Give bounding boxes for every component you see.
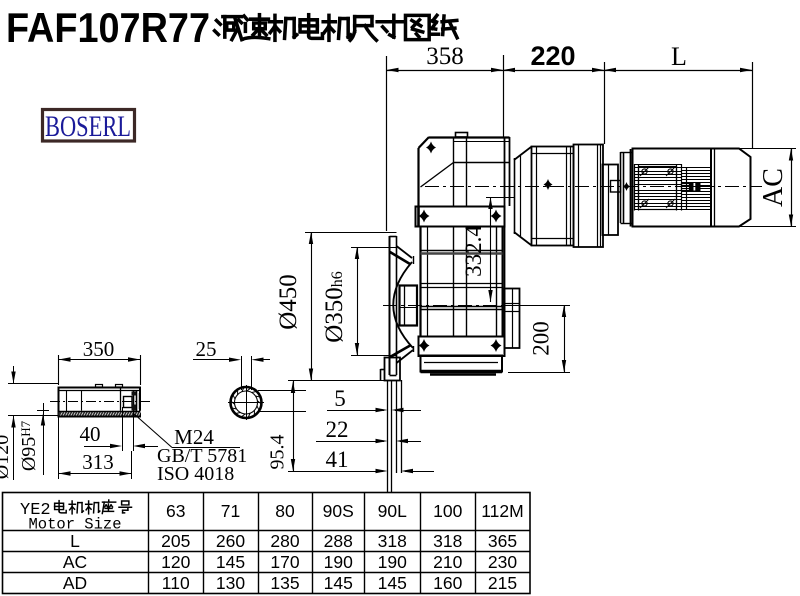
svg-text:230: 230 <box>488 552 517 572</box>
svg-text:210: 210 <box>433 552 462 572</box>
svg-text:145: 145 <box>216 552 245 572</box>
svg-text:ISO 4018: ISO 4018 <box>157 463 234 485</box>
svg-text:BOSERL: BOSERL <box>45 110 131 143</box>
svg-text:90L: 90L <box>378 501 407 521</box>
svg-text:112M: 112M <box>481 501 523 521</box>
svg-text:80: 80 <box>275 501 295 521</box>
svg-text:90S: 90S <box>323 501 354 521</box>
svg-text:205: 205 <box>161 531 190 551</box>
svg-text:AC: AC <box>758 168 789 207</box>
svg-text:220: 220 <box>530 41 575 71</box>
svg-text:160: 160 <box>433 573 462 593</box>
svg-text:288: 288 <box>324 531 353 551</box>
svg-text:5: 5 <box>334 386 346 411</box>
svg-text:95.4: 95.4 <box>267 435 289 470</box>
svg-text:350: 350 <box>83 337 115 361</box>
svg-text:318: 318 <box>433 531 462 551</box>
svg-text:318: 318 <box>378 531 407 551</box>
svg-text:280: 280 <box>270 531 299 551</box>
svg-text:313: 313 <box>82 450 114 474</box>
svg-text:FAF107R77: FAF107R77 <box>6 4 210 51</box>
svg-text:Ø450: Ø450 <box>275 274 302 330</box>
svg-text:135: 135 <box>270 573 299 593</box>
svg-text:190: 190 <box>378 552 407 572</box>
svg-text:25: 25 <box>196 337 217 361</box>
svg-text:215: 215 <box>488 573 517 593</box>
svg-text:145: 145 <box>324 573 353 593</box>
svg-text:260: 260 <box>216 531 245 551</box>
svg-text:145: 145 <box>378 573 407 593</box>
svg-text:110: 110 <box>162 573 190 593</box>
svg-text:63: 63 <box>166 501 185 521</box>
svg-text:130: 130 <box>216 573 245 593</box>
svg-text:120: 120 <box>161 552 190 572</box>
svg-text:365: 365 <box>488 531 517 551</box>
svg-text:170: 170 <box>270 552 299 572</box>
svg-text:40: 40 <box>80 422 101 446</box>
svg-text:L: L <box>671 42 687 71</box>
svg-text:358: 358 <box>426 43 464 70</box>
svg-text:AD: AD <box>63 573 87 593</box>
svg-text:41: 41 <box>326 447 349 472</box>
svg-text:L: L <box>70 531 80 551</box>
svg-text:22: 22 <box>326 417 349 442</box>
svg-text:AC: AC <box>63 552 87 572</box>
svg-text:190: 190 <box>324 552 353 572</box>
svg-text:100: 100 <box>433 501 462 521</box>
svg-text:200: 200 <box>529 321 554 356</box>
svg-text:332.4: 332.4 <box>461 225 486 277</box>
svg-text:Ø120: Ø120 <box>0 435 13 479</box>
svg-text:71: 71 <box>221 501 240 521</box>
